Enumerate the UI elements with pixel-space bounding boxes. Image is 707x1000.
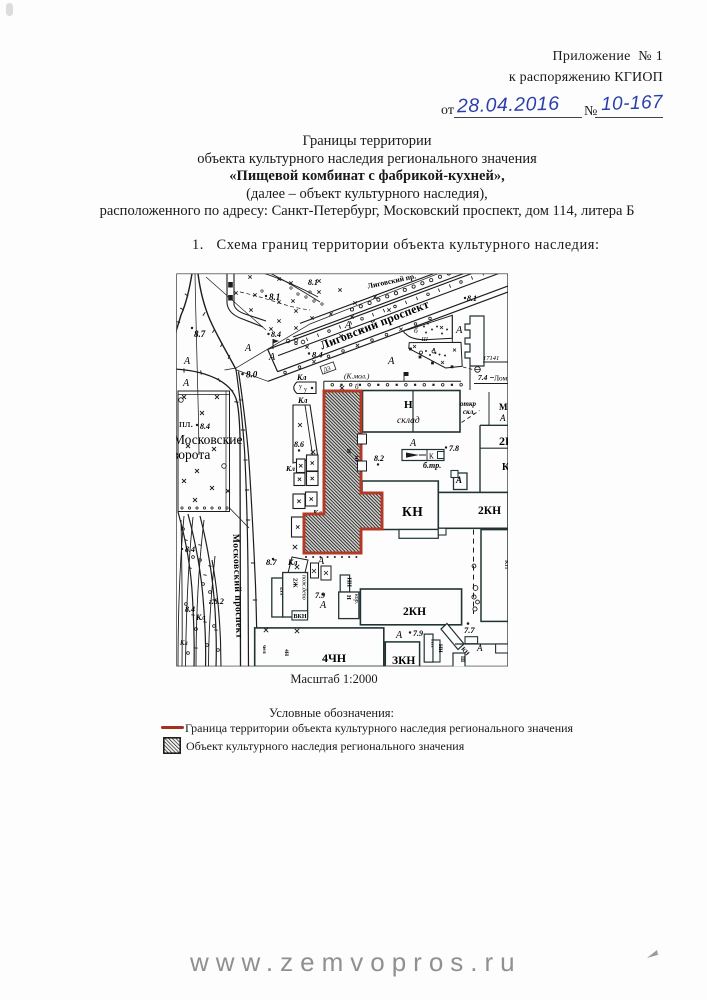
svg-text:2К: 2К [499, 434, 514, 448]
svg-text:чел: чел [261, 645, 267, 654]
svg-text:8.4: 8.4 [185, 545, 195, 554]
svg-text:А: А [182, 378, 190, 389]
svg-text:зг: зг [345, 448, 354, 455]
svg-text:7.9: 7.9 [315, 591, 325, 600]
svg-text:8.7: 8.7 [194, 329, 206, 339]
svg-text:А: А [455, 325, 463, 336]
svg-text:А: А [183, 356, 191, 367]
svg-text:Н: Н [404, 399, 413, 411]
svg-text:(К.мол.): (К.мол.) [344, 372, 370, 381]
svg-text:Московские: Московские [173, 432, 242, 447]
svg-text:склад: склад [397, 415, 420, 426]
svg-text:А: А [244, 343, 252, 354]
svg-text:ЗКН: ЗКН [392, 655, 415, 667]
svg-text:Кл: Кл [296, 373, 307, 382]
svg-text:Кл: Кл [287, 558, 298, 567]
svg-text:7.9: 7.9 [413, 629, 423, 638]
svg-text:у: у [304, 387, 307, 393]
svg-text:4Н: 4Н [283, 649, 289, 657]
svg-text:А: А [455, 475, 462, 485]
svg-text:Кл: Кл [297, 396, 308, 405]
svg-text:8.6: 8.6 [294, 440, 304, 449]
svg-text:НН: НН [346, 578, 352, 588]
svg-text:у: у [299, 384, 302, 390]
svg-text:8.1: 8.1 [308, 278, 318, 287]
svg-text:8.1: 8.1 [467, 294, 477, 303]
svg-text:КН: КН [402, 504, 423, 519]
svg-text:ворота: ворота [172, 447, 210, 462]
svg-text:пож.депо: пож.депо [301, 575, 308, 600]
svg-text:А: А [387, 356, 395, 367]
svg-text:8.2: 8.2 [374, 454, 384, 463]
svg-text:б: б [414, 326, 418, 335]
svg-text:Кл: Кл [195, 613, 206, 622]
svg-text:Ш: Ш [421, 337, 429, 343]
svg-text:откр: откр [460, 400, 476, 408]
svg-text:8.1: 8.1 [269, 292, 280, 302]
svg-text:А: А [395, 630, 403, 641]
svg-text:А: А [319, 600, 327, 611]
svg-text:8.4: 8.4 [312, 350, 323, 360]
svg-text:7.8: 7.8 [449, 444, 459, 453]
svg-text:б.тр.: б.тр. [423, 461, 441, 470]
svg-text:КП: КП [503, 560, 510, 569]
svg-text:8.4: 8.4 [271, 330, 281, 339]
svg-text:8.0: 8.0 [246, 370, 258, 380]
svg-text:А: А [499, 413, 506, 423]
svg-text:8.7: 8.7 [266, 557, 277, 567]
svg-text:Кл: Кл [285, 464, 295, 473]
svg-text:4ЧН: 4ЧН [322, 651, 347, 665]
svg-text:М: М [499, 402, 508, 412]
svg-text:К: К [502, 462, 510, 473]
svg-text:А: А [268, 352, 276, 363]
svg-text:А: А [344, 320, 352, 331]
svg-text:НН: НН [437, 644, 443, 653]
svg-text:7.4: 7.4 [478, 373, 488, 382]
svg-text:А: А [409, 438, 417, 449]
svg-text:А: А [476, 643, 483, 653]
svg-text:17141: 17141 [483, 355, 499, 362]
svg-text:2КН: 2КН [403, 606, 426, 618]
svg-text:г.8.2: г.8.2 [209, 597, 224, 606]
svg-text:пл.: пл. [179, 418, 193, 430]
svg-text:Ш: Ш [459, 656, 465, 662]
svg-text:ВКН: ВКН [294, 614, 307, 620]
svg-text:Кл: Кл [179, 639, 188, 647]
svg-text:8.4: 8.4 [185, 605, 195, 614]
svg-text:Лом: Лом [494, 374, 508, 383]
svg-text:8.4: 8.4 [200, 422, 210, 431]
svg-text:7.7: 7.7 [464, 625, 475, 635]
svg-text:кор.: кор. [353, 594, 359, 604]
svg-text:2КН: 2КН [478, 505, 501, 517]
svg-text:2Ж: 2Ж [292, 578, 299, 588]
svg-text:Н: Н [345, 595, 351, 600]
svg-text:К: К [429, 453, 434, 461]
